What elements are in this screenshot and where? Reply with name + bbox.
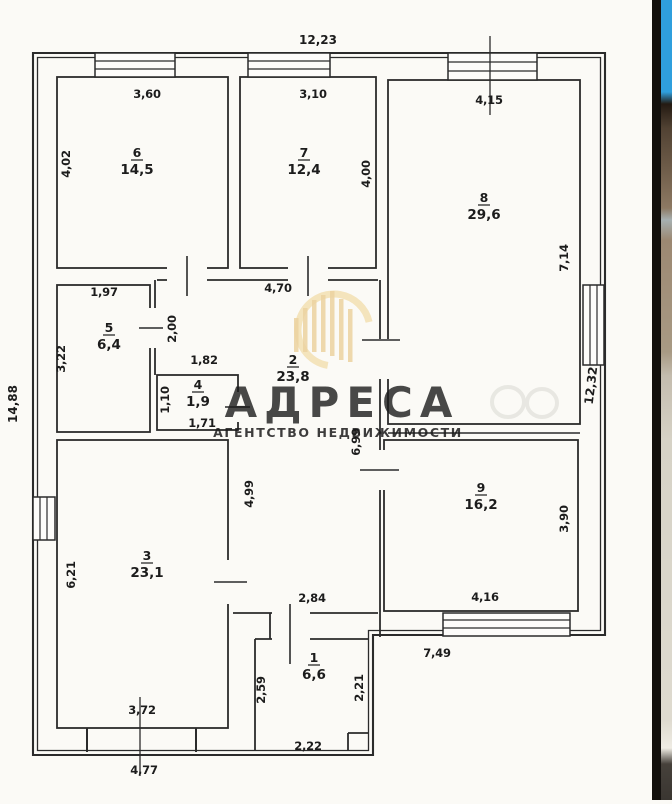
- dim-room2-left: 4,99: [242, 480, 256, 508]
- room-3-number: 3: [143, 548, 152, 563]
- dim-overall-top: 12,23: [299, 33, 337, 47]
- room-9-area: 16,2: [464, 497, 497, 513]
- room-1-number: 1: [310, 650, 319, 665]
- dim-room2-top: 4,70: [264, 281, 292, 295]
- dim-room1-bottom: 2,22: [294, 739, 322, 753]
- window-room6: [95, 53, 175, 77]
- room-1-area: 6,6: [302, 667, 326, 683]
- dim-room4-bottom: 1,71: [188, 416, 216, 430]
- dim-overall-left: 14,88: [6, 385, 20, 423]
- dim-room2-nook: 1,82: [190, 353, 218, 367]
- dim-room5-left: 3,22: [54, 345, 68, 373]
- room-5-area: 6,4: [97, 337, 121, 353]
- room-2-area: 23,8: [276, 369, 309, 385]
- room-6-area: 14,5: [120, 162, 153, 178]
- room-7-area: 12,4: [287, 162, 320, 178]
- room-3-area: 23,1: [130, 565, 163, 581]
- room-2-number: 2: [289, 352, 298, 367]
- dim-room4-left: 1,10: [158, 386, 172, 414]
- room-8-area: 29,6: [467, 207, 500, 223]
- window-room9-bottom: [443, 613, 570, 636]
- room-9-number: 9: [477, 480, 486, 495]
- dim-room1-top: 2,84: [298, 591, 326, 605]
- dim-room3-bottom: 3,72: [128, 703, 156, 717]
- room-6-number: 6: [133, 145, 142, 160]
- room-8-number: 8: [480, 190, 489, 205]
- window-room8: [448, 53, 537, 80]
- dim-room6-left: 4,02: [59, 150, 73, 178]
- dim-room2-right: 6,99: [349, 428, 363, 456]
- dim-overall-bottom-left: 4,77: [130, 763, 158, 777]
- window-right-wall: [583, 285, 604, 365]
- next-photo-sliver: [661, 0, 672, 800]
- window-room7: [248, 53, 330, 77]
- dim-room9-right: 3,90: [557, 505, 571, 533]
- dim-room2-door: 2,00: [165, 315, 179, 343]
- watermark-tagline-text: АГЕНТСТВО НЕДВИЖИМОСТИ: [213, 425, 463, 440]
- dim-room9-bottom: 4,16: [471, 590, 499, 604]
- room-5-number: 5: [105, 320, 114, 335]
- door-opening-room1: [272, 610, 310, 642]
- door-opening-room8: [377, 339, 390, 379]
- dim-room6-top: 3,60: [133, 87, 161, 101]
- dim-room8-right: 7,14: [557, 244, 571, 272]
- room-4-number: 4: [194, 377, 203, 392]
- dim-room8-top: 4,15: [475, 93, 503, 107]
- dim-room7-top: 3,10: [299, 87, 327, 101]
- room-4-area: 1,9: [186, 394, 210, 410]
- dim-room7-right: 4,00: [359, 160, 373, 188]
- room-7-number: 7: [300, 145, 309, 160]
- watermark-brand-text: АДРЕСА: [225, 378, 460, 427]
- next-photo-edge: [652, 0, 672, 800]
- dim-room3-left: 6,21: [64, 561, 78, 589]
- dim-room5-top: 1,97: [90, 285, 118, 299]
- photo-divider-bar: [652, 0, 661, 800]
- floorplan-photo: АДРЕСА АГЕНТСТВО НЕДВИЖИМОСТИ 12,23 14,8…: [0, 0, 672, 800]
- dim-overall-bottom-right: 7,49: [423, 646, 451, 660]
- floorplan-svg: АДРЕСА АГЕНТСТВО НЕДВИЖИМОСТИ 12,23 14,8…: [0, 0, 672, 800]
- dim-room1-left: 2,59: [254, 676, 268, 704]
- window-left-wall: [33, 497, 55, 540]
- dim-room1-right: 2,21: [352, 674, 366, 702]
